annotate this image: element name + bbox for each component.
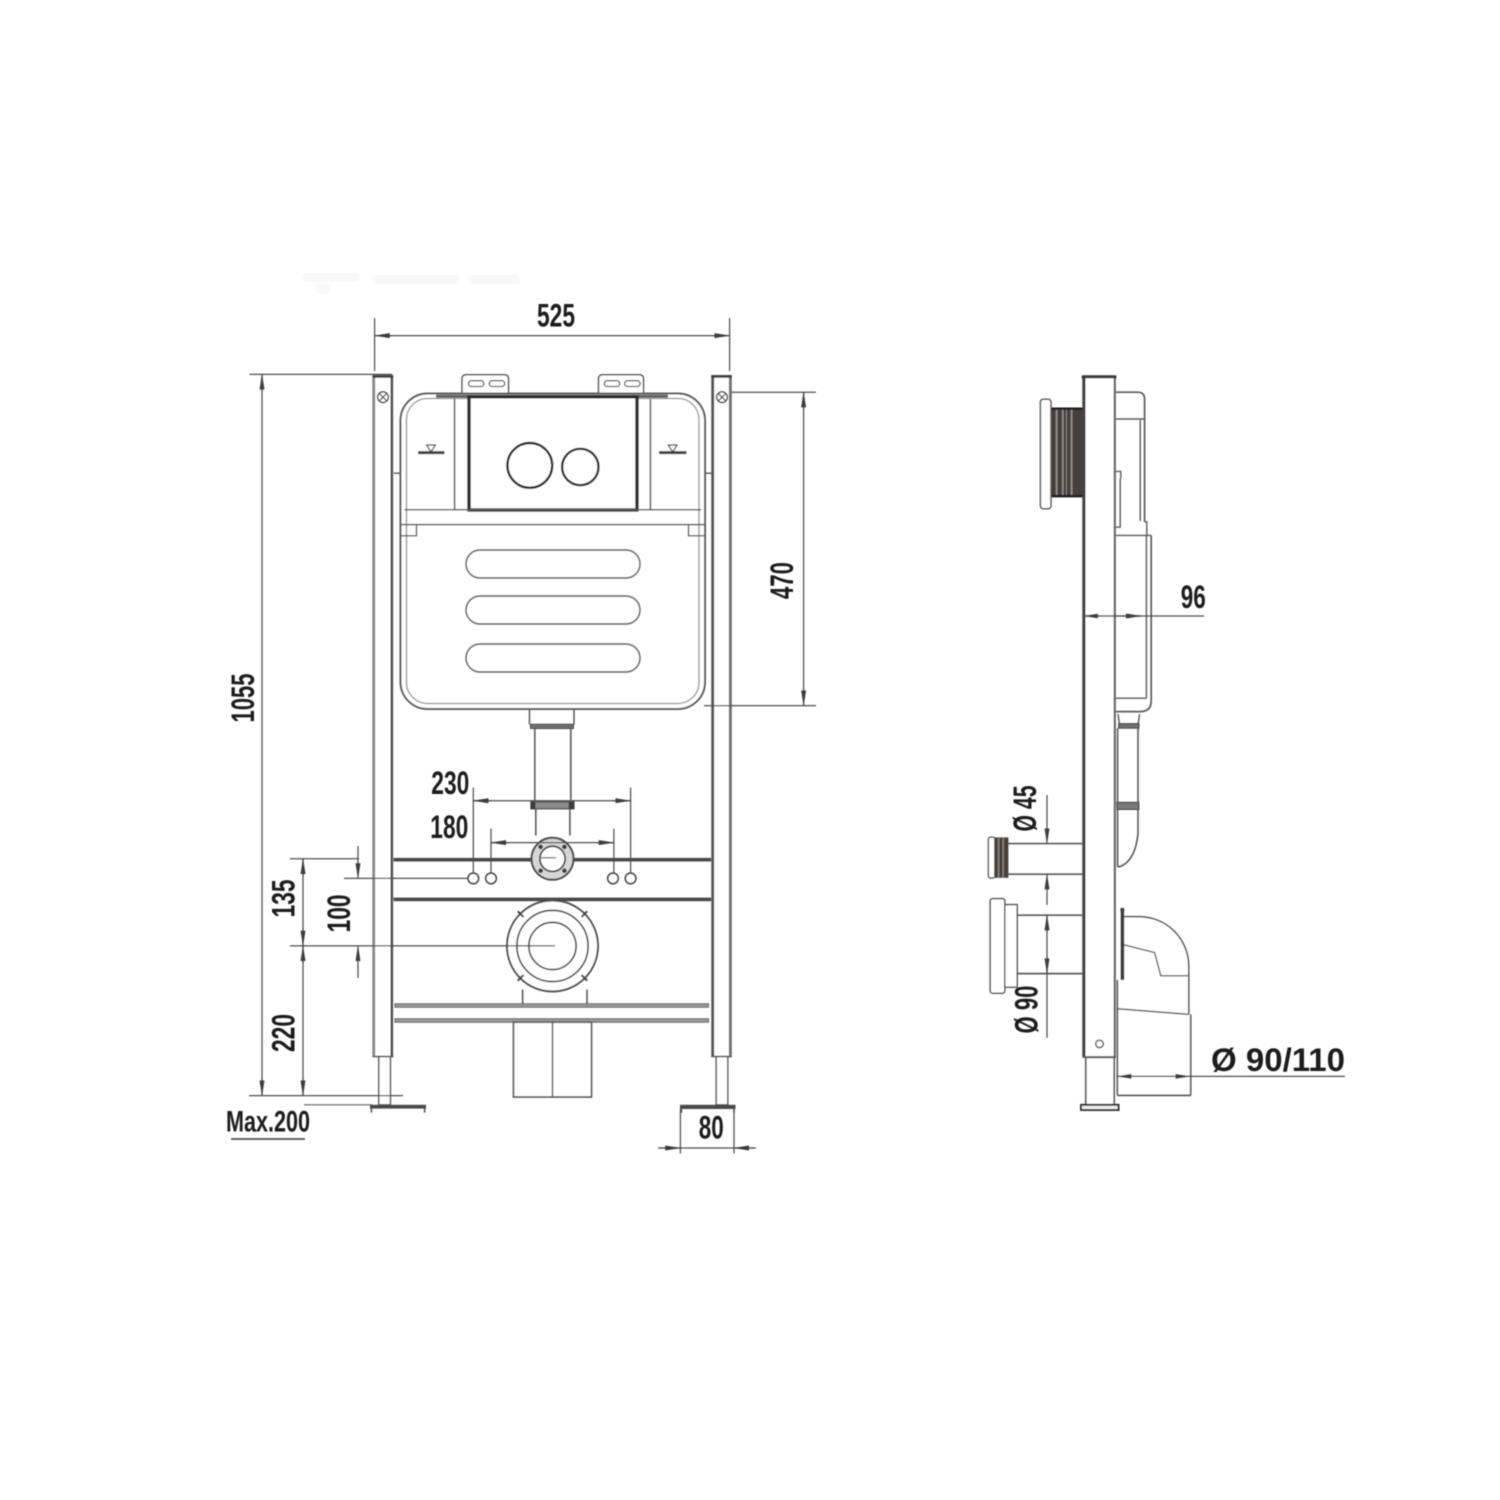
- svg-text:220: 220: [266, 1014, 302, 1052]
- svg-text:80: 80: [699, 1110, 724, 1146]
- svg-text:Max.200: Max.200: [226, 1106, 310, 1139]
- svg-text:525: 525: [537, 297, 575, 333]
- svg-text:180: 180: [430, 809, 468, 845]
- svg-text:230: 230: [431, 765, 469, 801]
- svg-text:96: 96: [1181, 579, 1206, 615]
- svg-text:100: 100: [321, 894, 357, 932]
- svg-text:470: 470: [764, 562, 800, 599]
- svg-text:Ø 90: Ø 90: [1009, 986, 1045, 1034]
- svg-text:Ø 90/110: Ø 90/110: [1211, 1042, 1345, 1078]
- svg-text:Ø 45: Ø 45: [1007, 786, 1043, 832]
- svg-text:135: 135: [266, 879, 302, 917]
- svg-text:1055: 1055: [225, 674, 261, 723]
